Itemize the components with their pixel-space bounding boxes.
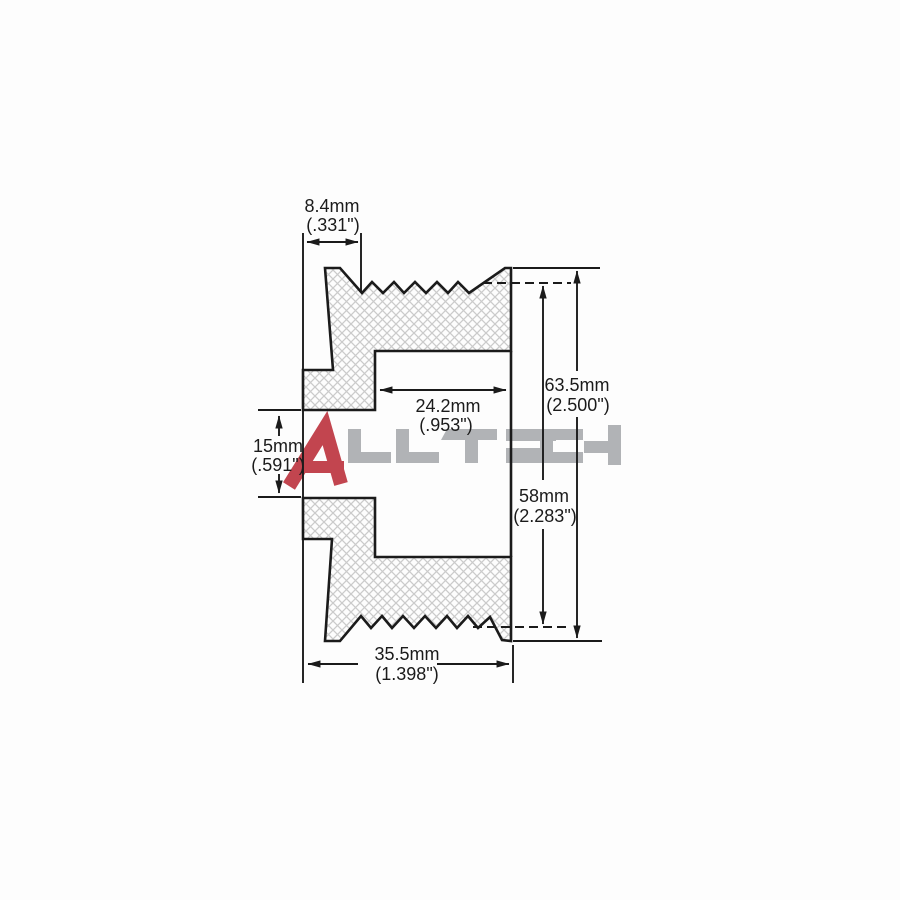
pulley-upper-half bbox=[303, 268, 511, 410]
watermark-letter-h-bar bbox=[584, 441, 610, 453]
dim-label-groove-offset-mm: 8.4mm bbox=[304, 196, 359, 216]
dim-label-recess-width-mm: 24.2mm bbox=[415, 396, 480, 416]
watermark-letters-lltech bbox=[348, 425, 621, 465]
pulley-lower-half bbox=[303, 498, 511, 641]
dim-label-rib-diameter-inch: (2.283") bbox=[513, 506, 576, 526]
dim-label-overall-width-inch: (1.398") bbox=[375, 664, 438, 684]
dim-label-bore-diameter-mm: 15mm bbox=[253, 436, 303, 456]
dim-label-outer-diameter-mm: 63.5mm bbox=[544, 375, 609, 395]
pulley-drawing-svg: 8.4mm (.331") 24.2mm (.953") 63.5mm (2.5… bbox=[0, 0, 900, 900]
watermark-letter-l1 bbox=[348, 429, 391, 463]
dim-label-bore-diameter-inch: (.591") bbox=[251, 455, 304, 475]
technical-drawing-page: 8.4mm (.331") 24.2mm (.953") 63.5mm (2.5… bbox=[0, 0, 900, 900]
dim-label-recess-width-inch: (.953") bbox=[419, 415, 472, 435]
dim-label-overall-width-mm: 35.5mm bbox=[374, 644, 439, 664]
dim-label-outer-diameter-inch: (2.500") bbox=[546, 395, 609, 415]
dim-label-rib-diameter-mm: 58mm bbox=[519, 486, 569, 506]
dim-label-groove-offset-inch: (.331") bbox=[306, 215, 359, 235]
